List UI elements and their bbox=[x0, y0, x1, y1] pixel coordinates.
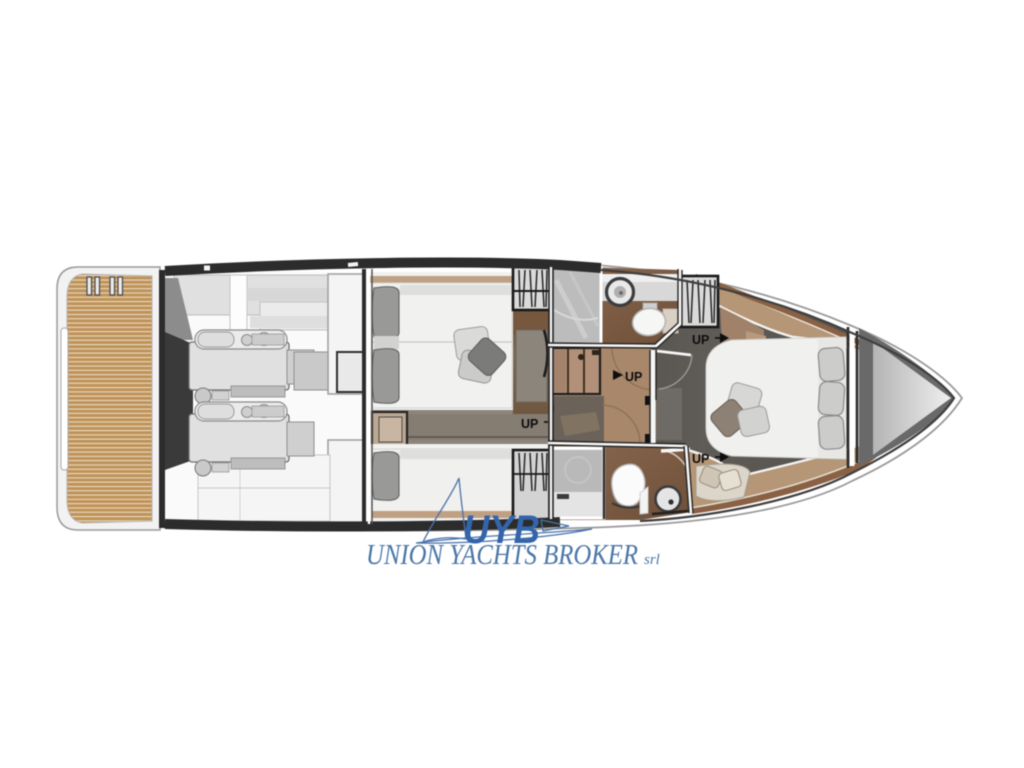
svg-text:srl: srl bbox=[644, 552, 660, 568]
svg-text:UP: UP bbox=[521, 417, 538, 431]
svg-text:UP: UP bbox=[692, 452, 709, 466]
svg-text:UNION YACHTS BROKER: UNION YACHTS BROKER bbox=[366, 540, 638, 571]
svg-text:UP: UP bbox=[692, 333, 709, 347]
svg-text:UP: UP bbox=[625, 370, 642, 384]
